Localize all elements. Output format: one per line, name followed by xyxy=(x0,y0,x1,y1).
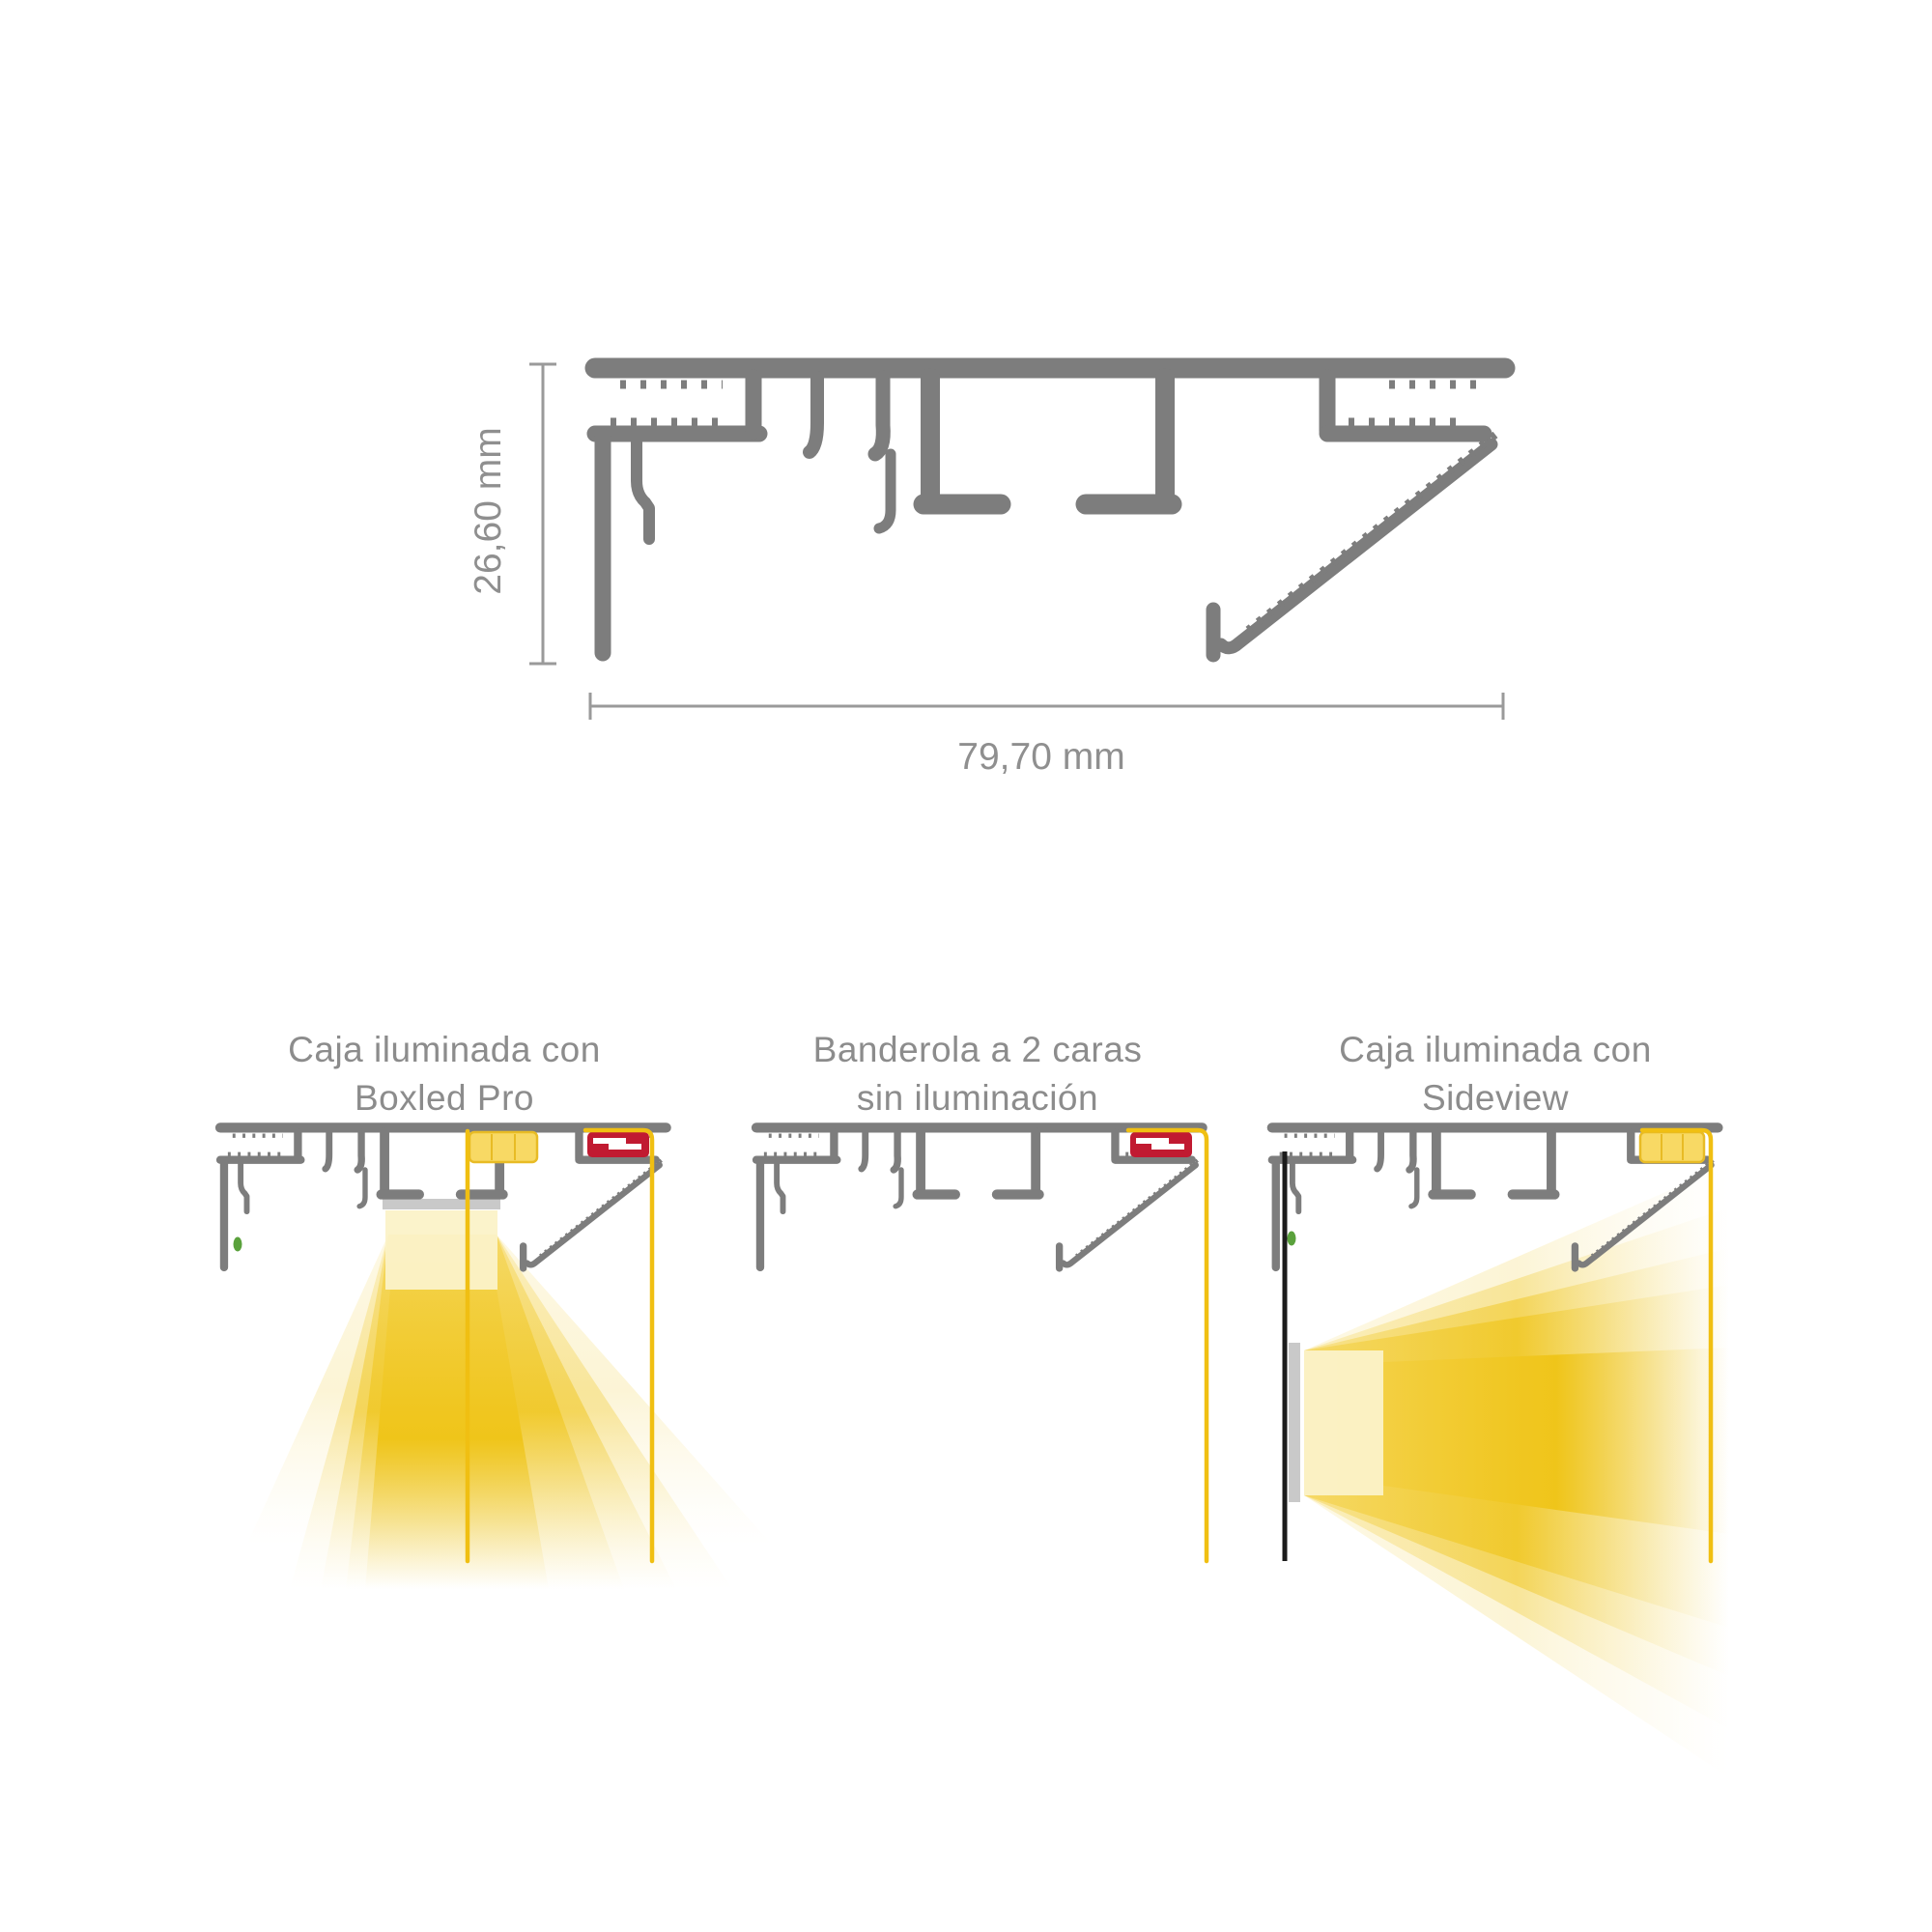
caption-banderola: Banderola a 2 caras sin iluminación xyxy=(751,1026,1205,1122)
diffuser-bar xyxy=(383,1199,500,1209)
caption-line: Boxled Pro xyxy=(217,1074,671,1122)
caption-line: Caja iluminada con xyxy=(1268,1026,1722,1074)
diagram-sideview xyxy=(1272,1127,1729,1777)
height-dimension xyxy=(529,364,556,664)
foam-pad-yellow xyxy=(1640,1132,1704,1162)
power-indicator-green xyxy=(234,1237,242,1252)
beam-halo xyxy=(1304,1350,1383,1495)
banner-face-yellow-line-right xyxy=(1128,1130,1207,1561)
caption-line: Caja iluminada con xyxy=(217,1026,671,1074)
led-module-red xyxy=(587,1132,649,1157)
caption-line: sin iluminación xyxy=(751,1074,1205,1122)
power-indicator-green xyxy=(1288,1232,1296,1246)
caption-line: Banderola a 2 caras xyxy=(751,1026,1205,1074)
width-dimension-label: 79,70 mm xyxy=(896,736,1186,779)
sideview-led-bar xyxy=(1289,1343,1300,1502)
height-dimension-label: 26,60 mm xyxy=(468,366,510,656)
page-canvas: 26,60 mm 79,70 mm Caja iluminada con Box… xyxy=(0,0,1932,1932)
led-module-red xyxy=(1130,1132,1192,1157)
technical-illustration xyxy=(0,0,1932,1932)
caption-line: Sideview xyxy=(1268,1074,1722,1122)
beam-halo xyxy=(385,1210,497,1290)
width-dimension xyxy=(590,693,1503,720)
diagram-boxled-pro xyxy=(220,1127,773,1589)
foam-pad-yellow xyxy=(469,1132,537,1162)
light-beam-down xyxy=(246,1235,773,1589)
caption-boxled-pro: Caja iluminada con Boxled Pro xyxy=(217,1026,671,1122)
main-profile-drawing xyxy=(595,368,1505,655)
caption-sideview: Caja iluminada con Sideview xyxy=(1268,1026,1722,1122)
